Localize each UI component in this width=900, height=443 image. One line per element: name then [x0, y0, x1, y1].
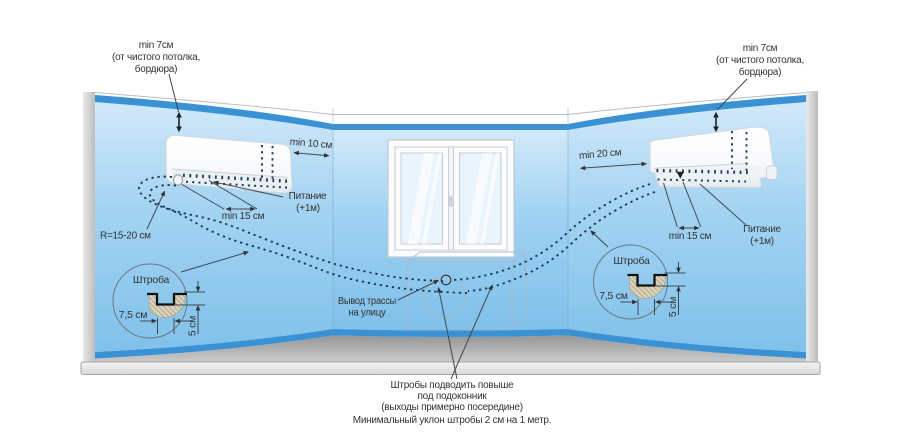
- svg-text:(от чистого потолка,: (от чистого потолка,: [716, 55, 804, 66]
- svg-text:(от чистого потолка,: (от чистого потолка,: [112, 52, 200, 63]
- svg-text:R=15-20 см: R=15-20 см: [100, 231, 151, 242]
- svg-text:Штробы подводить повыше: Штробы подводить повыше: [391, 379, 515, 391]
- svg-text:min 15 см: min 15 см: [222, 211, 265, 222]
- svg-text:Питание: Питание: [743, 224, 781, 235]
- svg-text:бордюра): бордюра): [135, 63, 177, 75]
- svg-text:min 7см: min 7см: [743, 43, 778, 54]
- svg-text:Минимальный уклон штробы 2 см: Минимальный уклон штробы 2 см на 1 метр.: [353, 414, 552, 426]
- svg-text:min 7см: min 7см: [139, 40, 174, 51]
- svg-text:7,5 см: 7,5 см: [119, 309, 148, 321]
- svg-text:Вывод трассы: Вывод трассы: [338, 296, 396, 307]
- svg-text:Питание: Питание: [289, 191, 327, 202]
- svg-text:5 см: 5 см: [186, 316, 198, 336]
- svg-text:(+1м): (+1м): [750, 236, 774, 247]
- svg-text:Штроба: Штроба: [133, 274, 170, 286]
- svg-text:под подоконник: под подоконник: [417, 391, 487, 402]
- svg-text:(выходы примерно посередине): (выходы примерно посередине): [381, 402, 523, 413]
- svg-text:на улицу: на улицу: [349, 308, 386, 319]
- svg-text:min 15 см: min 15 см: [669, 231, 712, 242]
- svg-text:(+1м): (+1м): [296, 203, 320, 214]
- svg-text:бордюра): бордюра): [739, 66, 781, 78]
